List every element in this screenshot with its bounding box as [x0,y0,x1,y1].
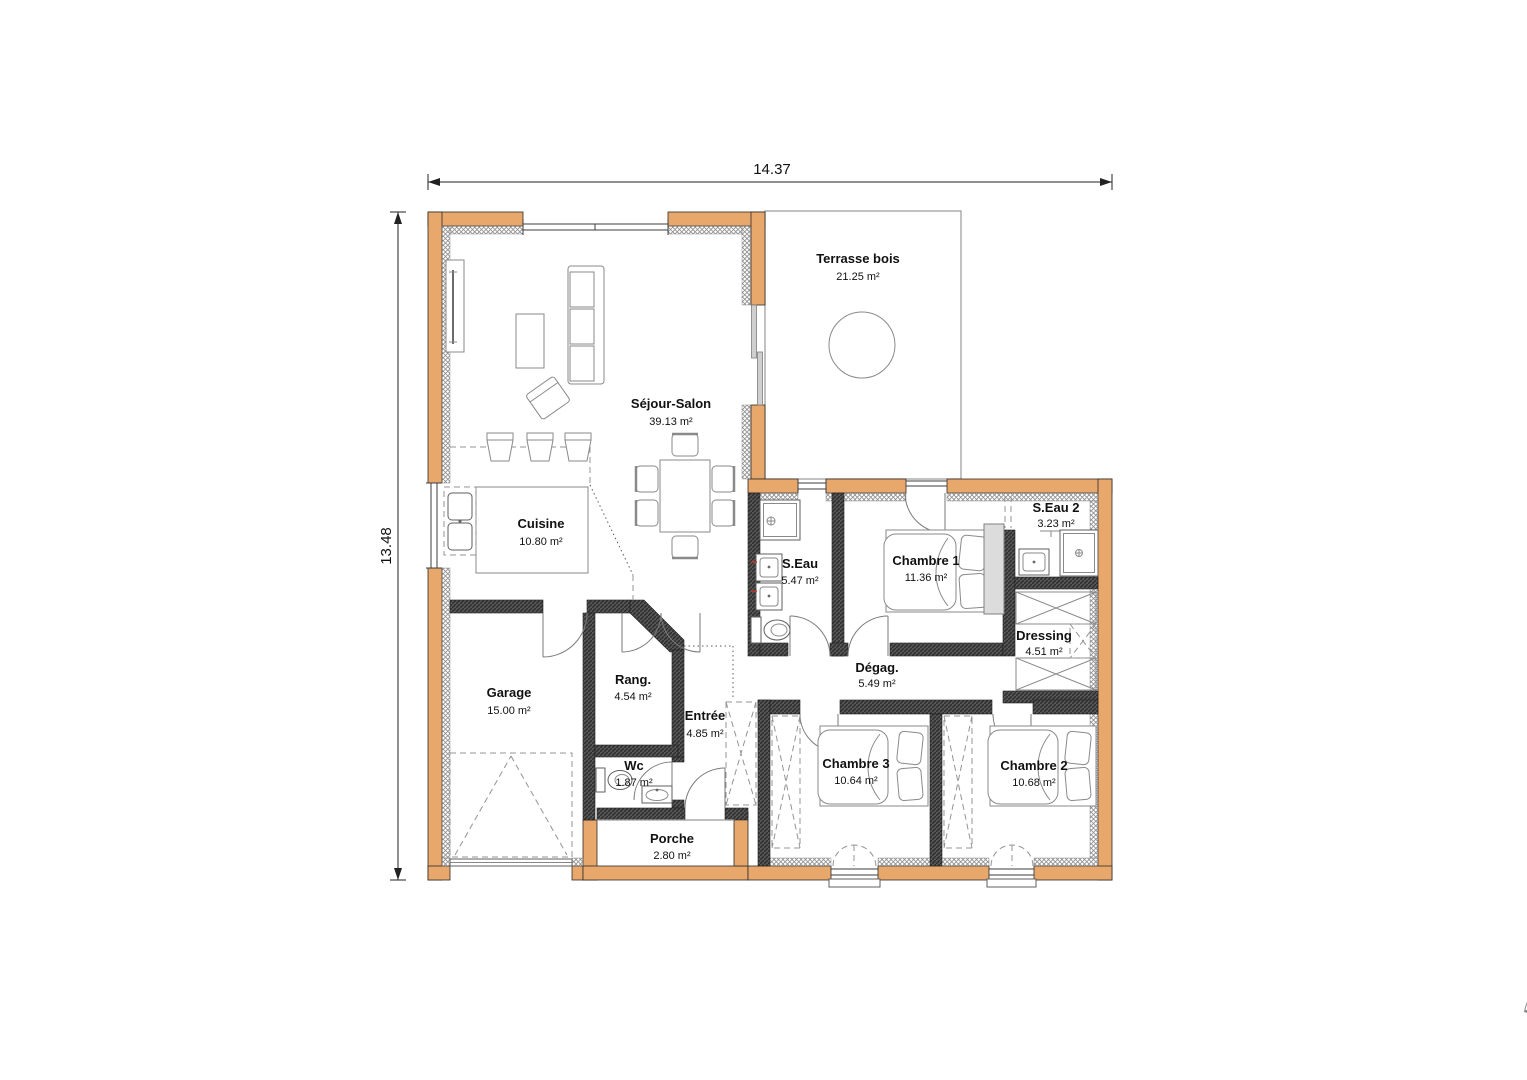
room-label-sejour: Séjour-Salon [631,396,711,411]
room-label-chambre-2: Chambre 2 [1000,758,1067,773]
room-area-sejour: 39.13 m² [649,416,693,428]
room-label-porche: Porche [650,831,694,846]
room-degagement: Dégag. 5.49 m² [855,660,898,690]
bed-chambre-1 [884,530,990,612]
floor-plan-svg: 14.37 13.48 Terrasse bois 21.25 m² [0,0,1527,1080]
door-chambre1-terrace [905,493,945,533]
room-seau-2: S.Eau 2 3.23 m² [1019,500,1098,576]
garage-door-swing [455,756,567,855]
room-garage: Garage 15.00 m² [450,685,572,857]
door-seau [790,616,830,656]
room-dressing: Dressing 4.51 m² [1016,592,1096,690]
room-area-dressing: 4.51 m² [1025,646,1063,658]
room-cuisine: Cuisine 10.80 m² [444,433,633,600]
kitchen-counter-sink [444,487,476,555]
room-rangement: Rang. 4.54 m² [614,672,652,703]
door-garage [543,613,587,657]
room-seau: S.Eau 5.47 m² [751,500,819,643]
closet-chambre-2 [944,716,972,848]
seau2-shower [1060,530,1098,576]
sofa [568,266,604,384]
room-label-seau: S.Eau [782,556,818,571]
coffee-table [516,314,544,368]
room-label-cuisine: Cuisine [518,516,565,531]
room-area-entree: 4.85 m² [686,728,724,740]
room-area-degagement: 5.49 m² [858,678,896,690]
room-area-terrasse: 21.25 m² [836,271,880,283]
room-area-rangement: 4.54 m² [614,691,652,703]
room-label-seau-2: S.Eau 2 [1033,500,1080,515]
door-entree-main [685,768,725,808]
room-area-seau: 5.47 m² [781,575,819,587]
room-chambre-1: Chambre 1 11.36 m² [884,524,1004,614]
room-chambre-2: Chambre 2 10.68 m² [944,716,1096,848]
room-area-garage: 15.00 m² [487,705,531,717]
dimension-width-label: 14.37 [753,161,791,178]
window-cuisine-left [426,483,442,568]
room-area-porche: 2.80 m² [653,850,691,862]
armchair [525,376,570,420]
garage-door-opening [450,859,572,866]
kitchen-zone-dotted [590,485,633,575]
entree-closet [726,702,756,805]
room-porche: Porche 2.80 m² [597,820,734,862]
closet-chambre-3 [772,716,800,848]
room-area-wc: 1.87 m² [615,777,653,789]
window-chambre2-bottom [987,845,1036,887]
sliding-bay-sejour-terrace [752,305,763,405]
window-chambre3-bottom [829,845,880,887]
room-area-cuisine: 10.80 m² [519,536,563,548]
dining-table [636,434,734,558]
zone-separator-dotted [684,646,733,700]
room-label-rangement: Rang. [615,672,651,687]
window-door-chambre1-terrace [906,481,947,486]
room-chambre-3: Chambre 3 10.64 m² [772,716,928,848]
room-label-wc: Wc [624,758,644,773]
room-area-seau-2: 3.23 m² [1037,518,1075,530]
room-label-terrasse: Terrasse bois [816,251,900,266]
room-sejour-salon: Séjour-Salon 39.13 m² [446,260,734,558]
dimension-height-label: 13.48 [378,527,395,565]
room-label-garage: Garage [487,685,532,700]
seau-toilet [751,617,790,643]
room-area-chambre-3: 10.64 m² [834,775,878,787]
shower [760,500,800,540]
window-seau-top [798,479,826,493]
bar-stools [487,433,591,461]
tv-unit [446,260,464,352]
terrace-table [829,312,895,378]
floor-plan: 14.37 13.48 Terrasse bois 21.25 m² [0,0,1527,1080]
room-label-entree: Entrée [685,708,725,723]
dimension-left: 13.48 [378,212,406,880]
wardrobe-chambre-1 [984,524,1004,614]
door-chambre1 [848,616,888,656]
room-area-chambre-2: 10.68 m² [1012,777,1056,789]
room-label-chambre-3: Chambre 3 [822,756,889,771]
garage-parking-dashed [450,753,572,857]
room-label-chambre-1: Chambre 1 [892,553,959,568]
room-area-chambre-1: 11.36 m² [905,572,948,584]
window-sejour-top [523,219,668,235]
seau2-sink [1019,531,1062,575]
room-label-degagement: Dégag. [855,660,898,675]
dimension-top: 14.37 [428,161,1112,190]
room-label-dressing: Dressing [1016,628,1072,643]
